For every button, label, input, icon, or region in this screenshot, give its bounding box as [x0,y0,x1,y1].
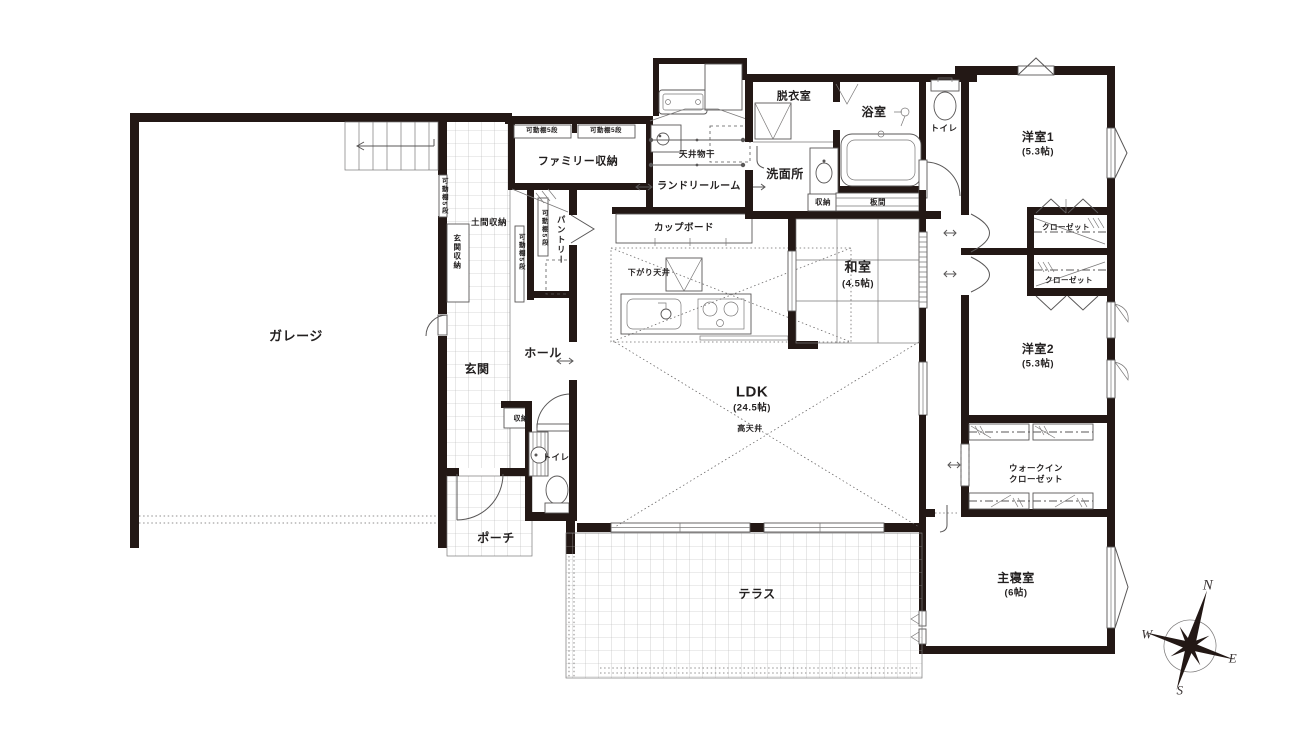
kitchen-counter [621,294,751,334]
senmenjo-storage-label: 収納 [815,198,831,206]
compass-n: N [1203,579,1214,594]
washer-dryer [659,90,707,114]
toilet-north-label: トイレ [930,124,957,133]
compass-w: W [1141,628,1152,641]
range-hood [666,258,702,291]
bay-window-master [1107,547,1128,628]
washitsu-size-label: (4.5帖) [842,279,874,289]
cupboard-label: カップボード [654,223,714,233]
laundry-basket-area [710,126,750,162]
shelf5-label-5: 可動棚5段 [590,128,622,135]
toilet-north-fixtures [931,78,959,120]
pantry-label: パントリー [557,215,566,265]
washitsu-west-sliding [788,251,796,311]
ceiling-drying-label: 天井物干 [679,150,715,159]
genkan-label: 玄関 [464,363,489,375]
master-bedroom-size-label: (6帖) [1004,588,1027,598]
yoshitsu1-door [971,214,990,252]
ldk-label: LDK [736,385,768,400]
yoshitsu2-door [971,257,990,292]
master-door-swing [940,505,947,532]
yokushitsu-label: 浴室 [861,106,886,118]
toilet-south-fixtures [529,432,569,513]
hall-label: ホール [524,347,562,359]
high-ceiling-label: 高天井 [737,425,763,433]
family-storage-label: ファミリー収納 [538,157,619,168]
compass-e: E [1229,652,1237,665]
doma-storage-label: 土間収納 [471,218,507,227]
closet2-label: クローゼット [1045,276,1093,284]
closet1-label: クローゼット [1042,223,1090,231]
hall-storage-label: 収納 [514,416,529,423]
shelf5-label-2: 可動棚5段 [517,233,524,270]
itanoma-label: 板間 [870,198,886,206]
bathtub [841,131,921,186]
shelf5-label-1: 可動棚5段 [440,177,447,214]
laundry-room-label: ランドリールーム [657,182,741,192]
washitsu-label: 和室 [844,261,871,274]
genkan-storage-label: 玄関収納 [453,234,461,270]
door-swing-mark-1 [757,146,764,168]
east-wing [911,58,1128,654]
laundry-sink [651,125,681,152]
washer-pan [755,103,791,139]
senmenjo-label: 洗面所 [766,168,804,180]
laundry-cabinet [705,64,742,110]
ldk [557,190,919,554]
shelf5-label-4: 可動棚5段 [526,128,558,135]
closet-2 [1034,262,1107,310]
compass-s: S [1177,684,1184,697]
wic-label-line1: ウォークイン [1009,464,1063,473]
toilet-south-label: トイレ [542,453,569,462]
porch-label: ポーチ [477,532,515,544]
yoshitsu1-size-label: (5.3帖) [1022,147,1054,157]
stairs [345,122,438,170]
pantry-lower-shelf [546,260,572,294]
datsuishitsu-label: 脱衣室 [777,92,812,103]
yoshitsu2-label: 洋室2 [1022,343,1054,355]
master-bedroom-label: 主寝室 [997,572,1035,584]
garage-label: ガレージ [269,330,323,343]
lowered-ceiling-label: 下がり天井 [628,269,671,277]
wic-label-line2: クローゼット [1009,475,1063,484]
floor-plan-drawing [0,0,1300,745]
shelf5-label-3: 可動棚5段 [540,209,547,246]
terrace [566,533,922,678]
vanity [810,148,838,196]
high-ceiling-area [615,342,919,527]
corridor-window [919,362,927,415]
yoshitsu2-size-label: (5.3帖) [1022,359,1054,369]
bay-window-yoshitsu1 [1107,128,1127,178]
pantry-door [571,215,594,243]
terrace-label: テラス [738,588,775,600]
yoshitsu1-label: 洋室1 [1022,131,1054,143]
terrace-sliding-doors [611,523,884,532]
ldk-size-label: (24.5帖) [733,403,771,413]
floor-plan: ガレージ玄関ホールポーチ土間収納玄関収納可動棚5段可動棚5段可動棚5段パントリー… [0,0,1300,745]
shower-head [894,108,909,126]
washitsu-sliding-door [919,232,927,308]
